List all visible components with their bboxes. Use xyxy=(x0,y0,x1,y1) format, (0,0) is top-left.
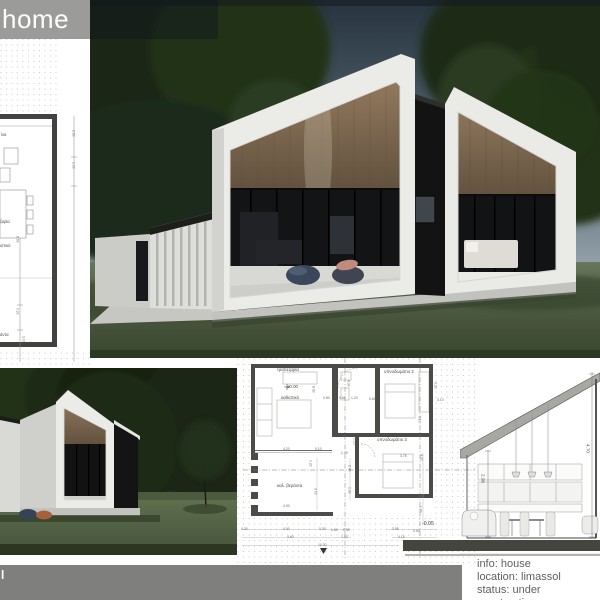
footer-bar: l xyxy=(0,565,462,600)
secondary-render-image xyxy=(0,368,237,555)
left-plan-strip: ίναζαρίαιστικόάντα2.501.006.500.203.00 xyxy=(0,0,90,368)
header-band: home xyxy=(0,0,90,39)
left-plan-drawing xyxy=(0,0,90,368)
section-ground-band xyxy=(403,540,600,551)
info-line-status: status: under construction xyxy=(477,584,600,600)
section-furniture xyxy=(462,510,598,536)
info-line-location: location: limassol xyxy=(477,571,600,584)
secondary-render xyxy=(0,368,237,555)
roof xyxy=(460,373,600,458)
nav-home-link[interactable]: home xyxy=(2,4,69,35)
section-ground-line xyxy=(405,554,600,556)
main-render-image xyxy=(90,0,600,358)
section-drawing-image xyxy=(460,358,600,558)
header-overlay xyxy=(90,0,218,39)
portfolio-page: home xyxy=(0,0,600,600)
main-render xyxy=(90,0,600,358)
info-line-type: info: house xyxy=(477,558,600,571)
footer-text-fragment: l xyxy=(1,568,4,582)
floor-plan-drawing xyxy=(237,358,475,565)
kitchen-cabinets xyxy=(478,464,582,512)
project-info: info: house location: limassol status: u… xyxy=(477,558,600,600)
section-drawing: 2.964.70 xyxy=(460,358,600,558)
floor-plan: τραπεζαρία±0.00καθιστικόυπνοδωμάτιο 2υπν… xyxy=(237,358,475,565)
